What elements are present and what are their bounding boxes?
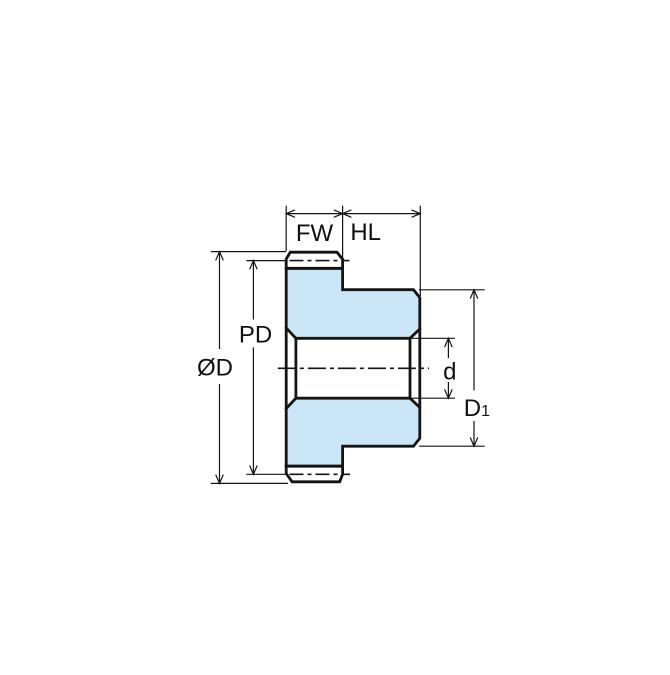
svg-text:d: d (443, 358, 456, 385)
svg-text:PD: PD (239, 322, 272, 349)
svg-text:HL: HL (350, 219, 381, 246)
svg-text:FW: FW (296, 220, 334, 247)
svg-text:ØD: ØD (197, 355, 233, 382)
